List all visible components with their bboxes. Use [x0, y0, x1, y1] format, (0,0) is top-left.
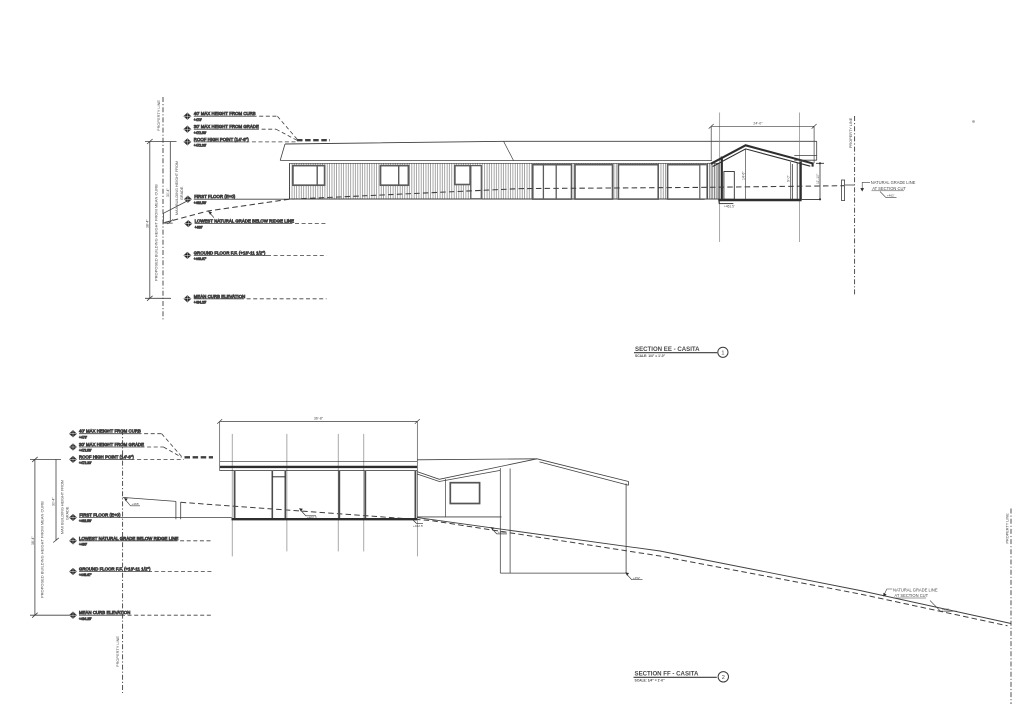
- svg-text:GROUND FLOOR F.F. (+13'-11 1/2: GROUND FLOOR F.F. (+13'-11 1/2"): [194, 250, 266, 255]
- svg-text:+462.58': +462.58': [79, 519, 92, 523]
- svg-text:40' MAX HEIGHT FROM CURB: 40' MAX HEIGHT FROM CURB: [79, 429, 141, 434]
- svg-text:+472.33': +472.33': [194, 144, 207, 148]
- svg-text:+462': +462': [887, 194, 895, 198]
- svg-text:2: 2: [722, 675, 725, 681]
- svg-text:30' MAX HEIGHT FROM GRADE: 30' MAX HEIGHT FROM GRADE: [79, 442, 144, 447]
- svg-text:SCALE: 1/4" = 1'-0": SCALE: 1/4" = 1'-0": [635, 679, 666, 683]
- svg-text:1: 1: [721, 351, 724, 357]
- svg-text:GROUND FLOOR F.F. (+13'-11 1/2: GROUND FLOOR F.F. (+13'-11 1/2"): [79, 567, 151, 572]
- svg-text:30'-4": 30'-4": [166, 188, 170, 197]
- svg-text:PROPERTY LINE: PROPERTY LINE: [156, 100, 161, 131]
- svg-text:PROPERTY LINE: PROPERTY LINE: [849, 117, 853, 148]
- svg-text:AT SECTION CUT: AT SECTION CUT: [872, 186, 906, 191]
- svg-text:+460': +460': [498, 530, 506, 534]
- svg-text:36'-8": 36'-8": [314, 417, 324, 421]
- svg-text:ROOF HIGH POINT (14'-6"): ROOF HIGH POINT (14'-6"): [194, 137, 249, 142]
- svg-text:ROOF HIGH POINT (14'-6"): ROOF HIGH POINT (14'-6"): [79, 454, 134, 459]
- svg-text:+453': +453': [942, 607, 950, 611]
- svg-text:+473': +473': [194, 118, 202, 122]
- svg-text:GRADE: GRADE: [180, 186, 184, 200]
- svg-text:11'-10": 11'-10": [816, 173, 820, 184]
- svg-text:+472.33': +472.33': [79, 461, 92, 465]
- svg-text:+462.5': +462.5': [413, 524, 424, 528]
- svg-text:PROPOSED BUILDING HEIGHT FROM: PROPOSED BUILDING HEIGHT FROM MEAN CURB: [154, 184, 159, 281]
- svg-text:14'-6": 14'-6": [742, 171, 746, 180]
- svg-text:+473': +473': [79, 435, 87, 439]
- svg-text:+472.58': +472.58': [79, 449, 92, 453]
- svg-text:24'-0": 24'-0": [753, 122, 763, 126]
- svg-text:30' MAX HEIGHT FROM GRADE: 30' MAX HEIGHT FROM GRADE: [194, 124, 259, 129]
- svg-text:40' MAX HEIGHT FROM CURB: 40' MAX HEIGHT FROM CURB: [194, 111, 256, 116]
- svg-text:AT SECTION CUT: AT SECTION CUT: [894, 593, 928, 598]
- svg-text:LOWEST NATURAL GRADE BELOW RID: LOWEST NATURAL GRADE BELOW RIDGE LINE: [195, 219, 295, 224]
- svg-text:PROPERTY LINE: PROPERTY LINE: [115, 636, 120, 667]
- svg-text:+460': +460': [195, 225, 203, 229]
- svg-text:38'-4": 38'-4": [146, 219, 150, 228]
- svg-text:+448.67': +448.67': [79, 573, 92, 577]
- svg-text:SCALE: 1/4" = 1'-0": SCALE: 1/4" = 1'-0": [635, 354, 666, 358]
- svg-text:+472.58': +472.58': [194, 131, 207, 135]
- svg-text:NATURAL GRADE LINE: NATURAL GRADE LINE: [893, 587, 938, 592]
- svg-text:LOWEST NATURAL GRADE BELOW RID: LOWEST NATURAL GRADE BELOW RIDGE LINE: [79, 536, 179, 541]
- svg-text:+461.5': +461.5': [724, 205, 735, 209]
- svg-text:NATURAL GRADE LINE: NATURAL GRADE LINE: [871, 180, 916, 185]
- svg-text:+462.58': +462.58': [194, 201, 207, 205]
- svg-text:+460.5': +460.5': [307, 516, 318, 520]
- svg-text:MEAN CURB ELEVATION: MEAN CURB ELEVATION: [79, 610, 130, 615]
- svg-text:SECTION EE - CASITA: SECTION EE - CASITA: [635, 346, 700, 353]
- svg-text:30'-4": 30'-4": [52, 497, 56, 506]
- svg-text:+434.25': +434.25': [194, 301, 207, 305]
- svg-text:GRADE: GRADE: [66, 506, 70, 520]
- svg-text:+452': +452': [633, 576, 641, 580]
- svg-text:+460': +460': [79, 543, 87, 547]
- svg-text:+448.67': +448.67': [194, 257, 207, 261]
- svg-text:MAX BUILDING HEIGHT FROM: MAX BUILDING HEIGHT FROM: [61, 480, 65, 534]
- svg-text:38'-4": 38'-4": [31, 536, 35, 545]
- svg-text:FIRST FLOOR (E+0): FIRST FLOOR (E+0): [79, 513, 121, 518]
- svg-text:9'-0": 9'-0": [787, 174, 791, 182]
- svg-text:+465': +465': [132, 502, 140, 506]
- svg-text:+434.25': +434.25': [79, 617, 92, 621]
- svg-text:MEAN CURB ELEVATION: MEAN CURB ELEVATION: [194, 294, 245, 299]
- svg-text:PROPERTY LINE: PROPERTY LINE: [1005, 513, 1009, 544]
- svg-text:SECTION FF - CASITA: SECTION FF - CASITA: [635, 671, 699, 678]
- svg-text:FIRST FLOOR (E+0): FIRST FLOOR (E+0): [194, 194, 236, 199]
- svg-text:PROPOSED BUILDING HEIGHT FROM: PROPOSED BUILDING HEIGHT FROM MEAN CURB: [39, 501, 44, 598]
